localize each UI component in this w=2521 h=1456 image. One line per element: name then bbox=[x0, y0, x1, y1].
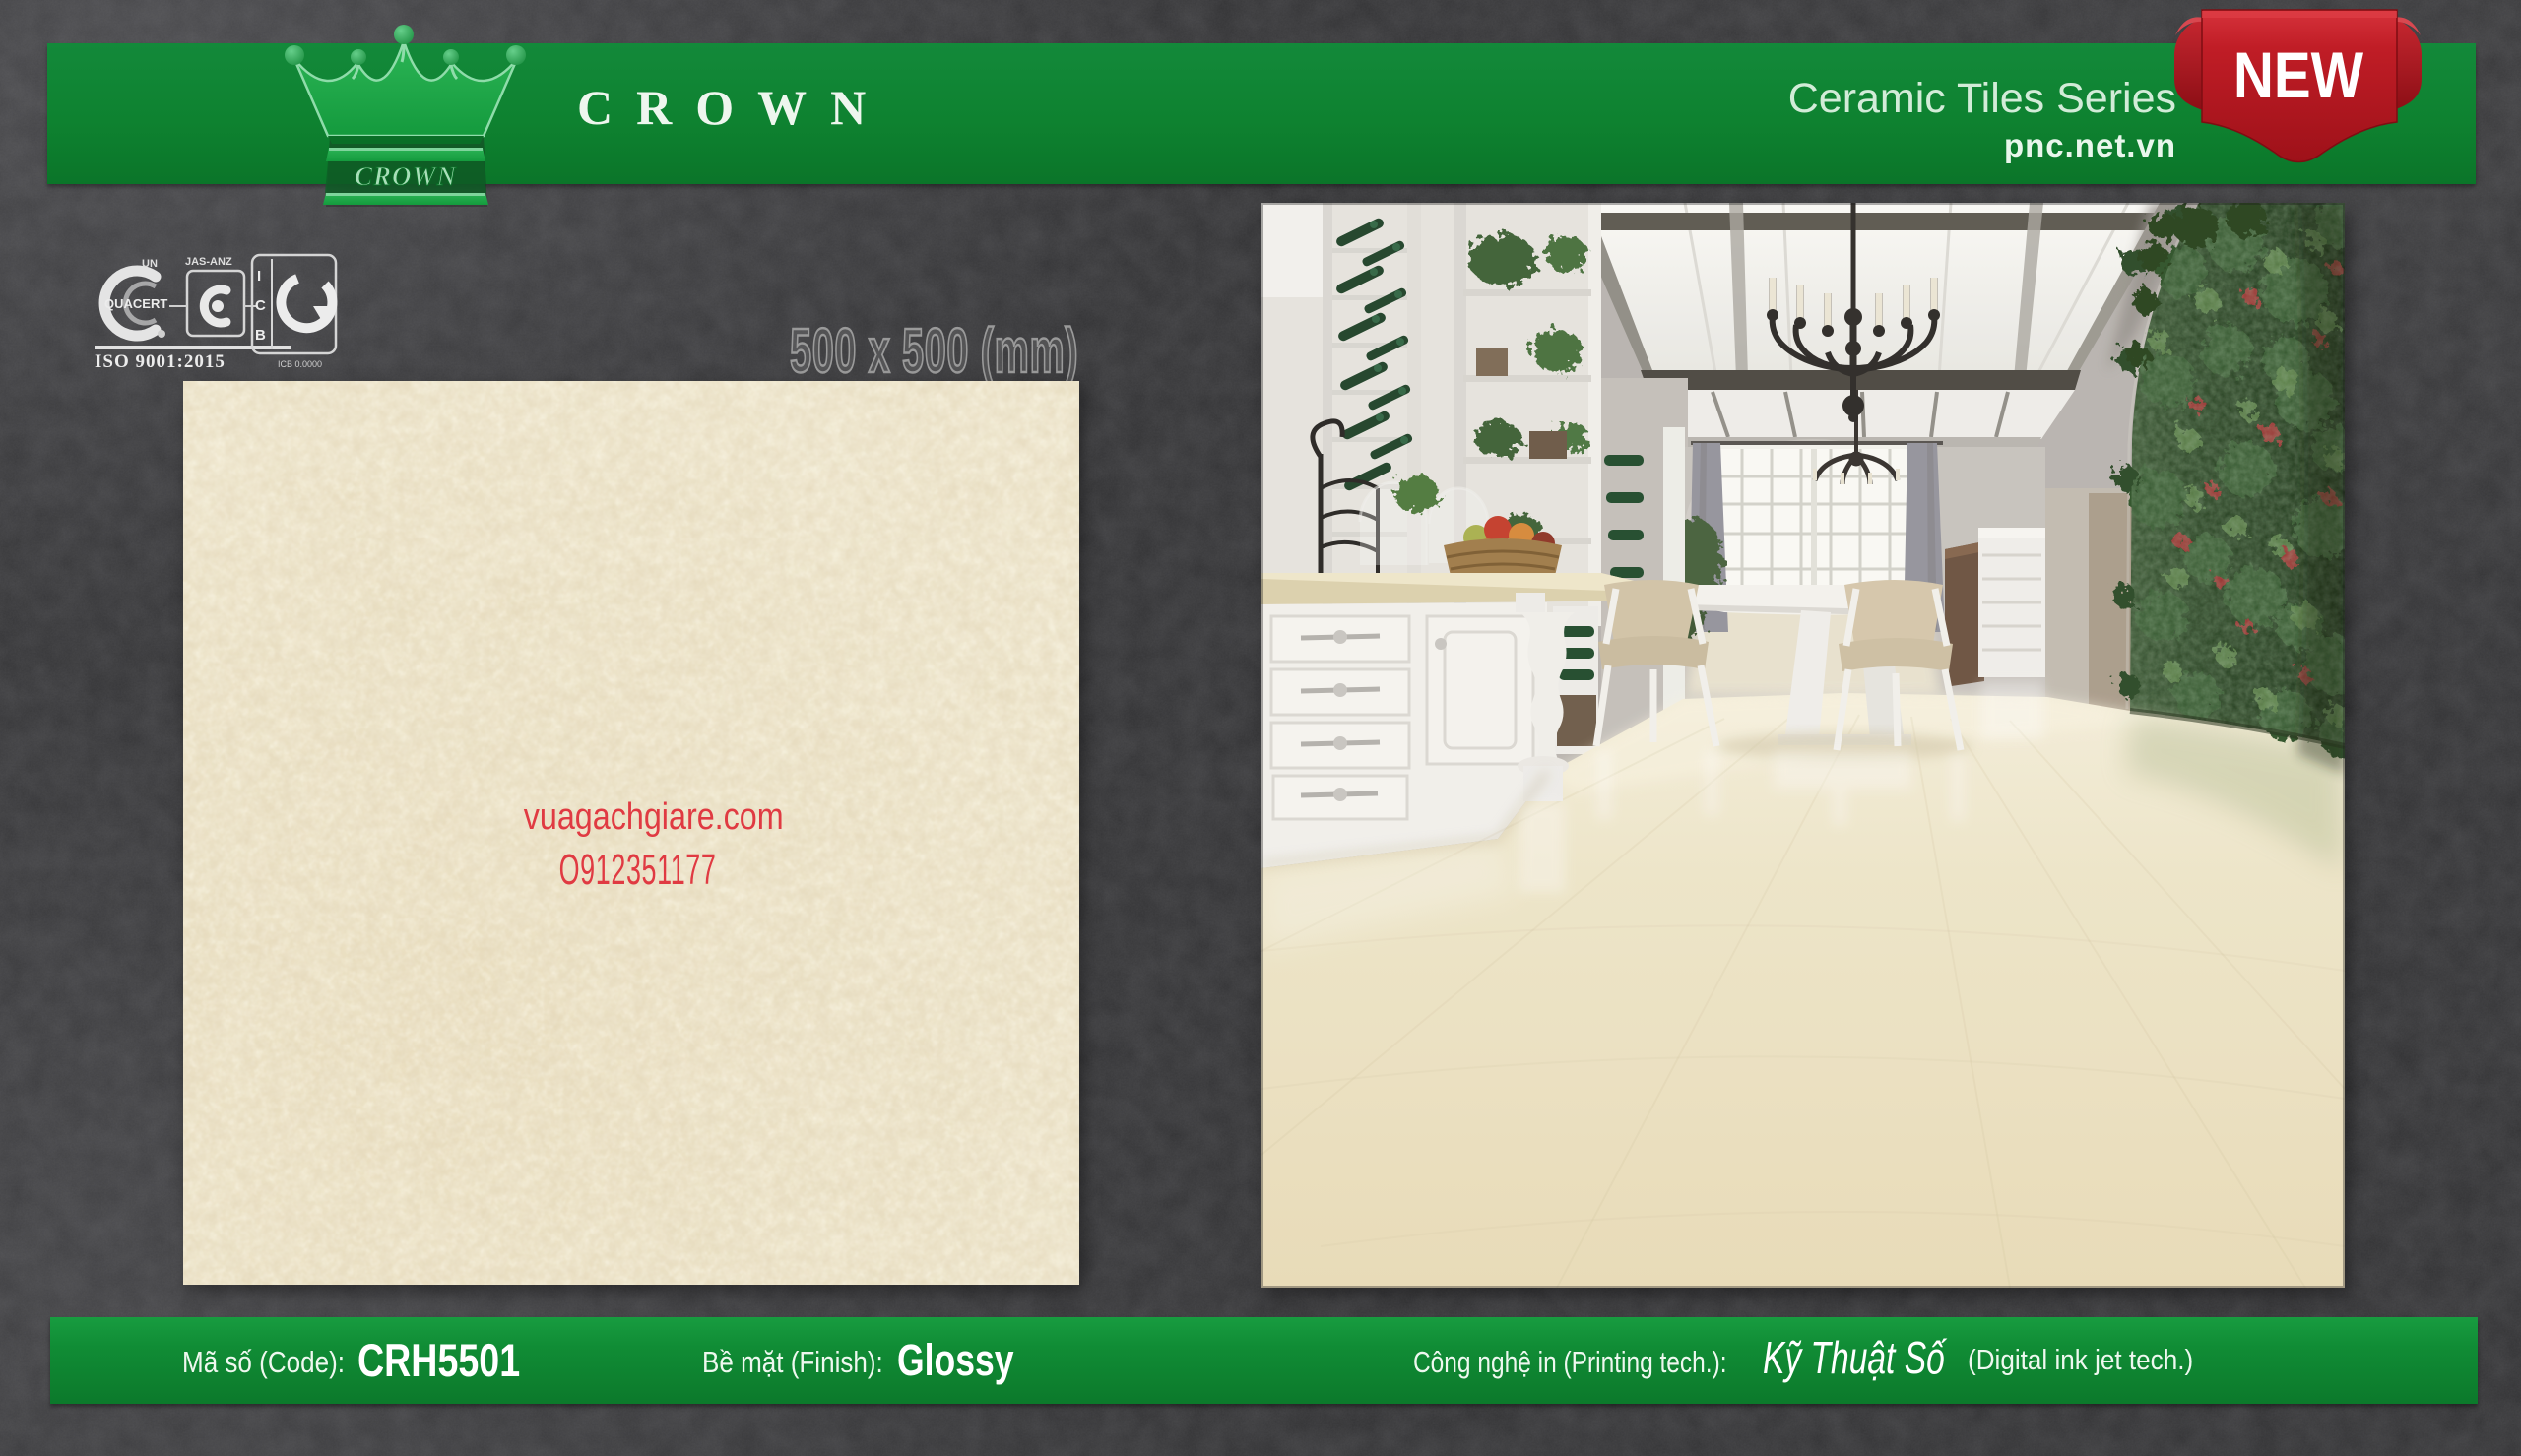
svg-text:B: B bbox=[255, 327, 266, 344]
svg-text:ICB 0.0000: ICB 0.0000 bbox=[278, 359, 322, 369]
svg-text:QUACERT: QUACERT bbox=[104, 296, 167, 311]
svg-text:CROWN: CROWN bbox=[355, 161, 458, 191]
svg-text:I: I bbox=[257, 268, 261, 285]
svg-text:JAS-ANZ: JAS-ANZ bbox=[185, 256, 232, 268]
svg-text:UN: UN bbox=[142, 258, 158, 270]
svg-text:C: C bbox=[255, 297, 266, 314]
svg-text:NEW: NEW bbox=[2233, 38, 2364, 111]
svg-text:ISO 9001:2015: ISO 9001:2015 bbox=[95, 351, 226, 371]
